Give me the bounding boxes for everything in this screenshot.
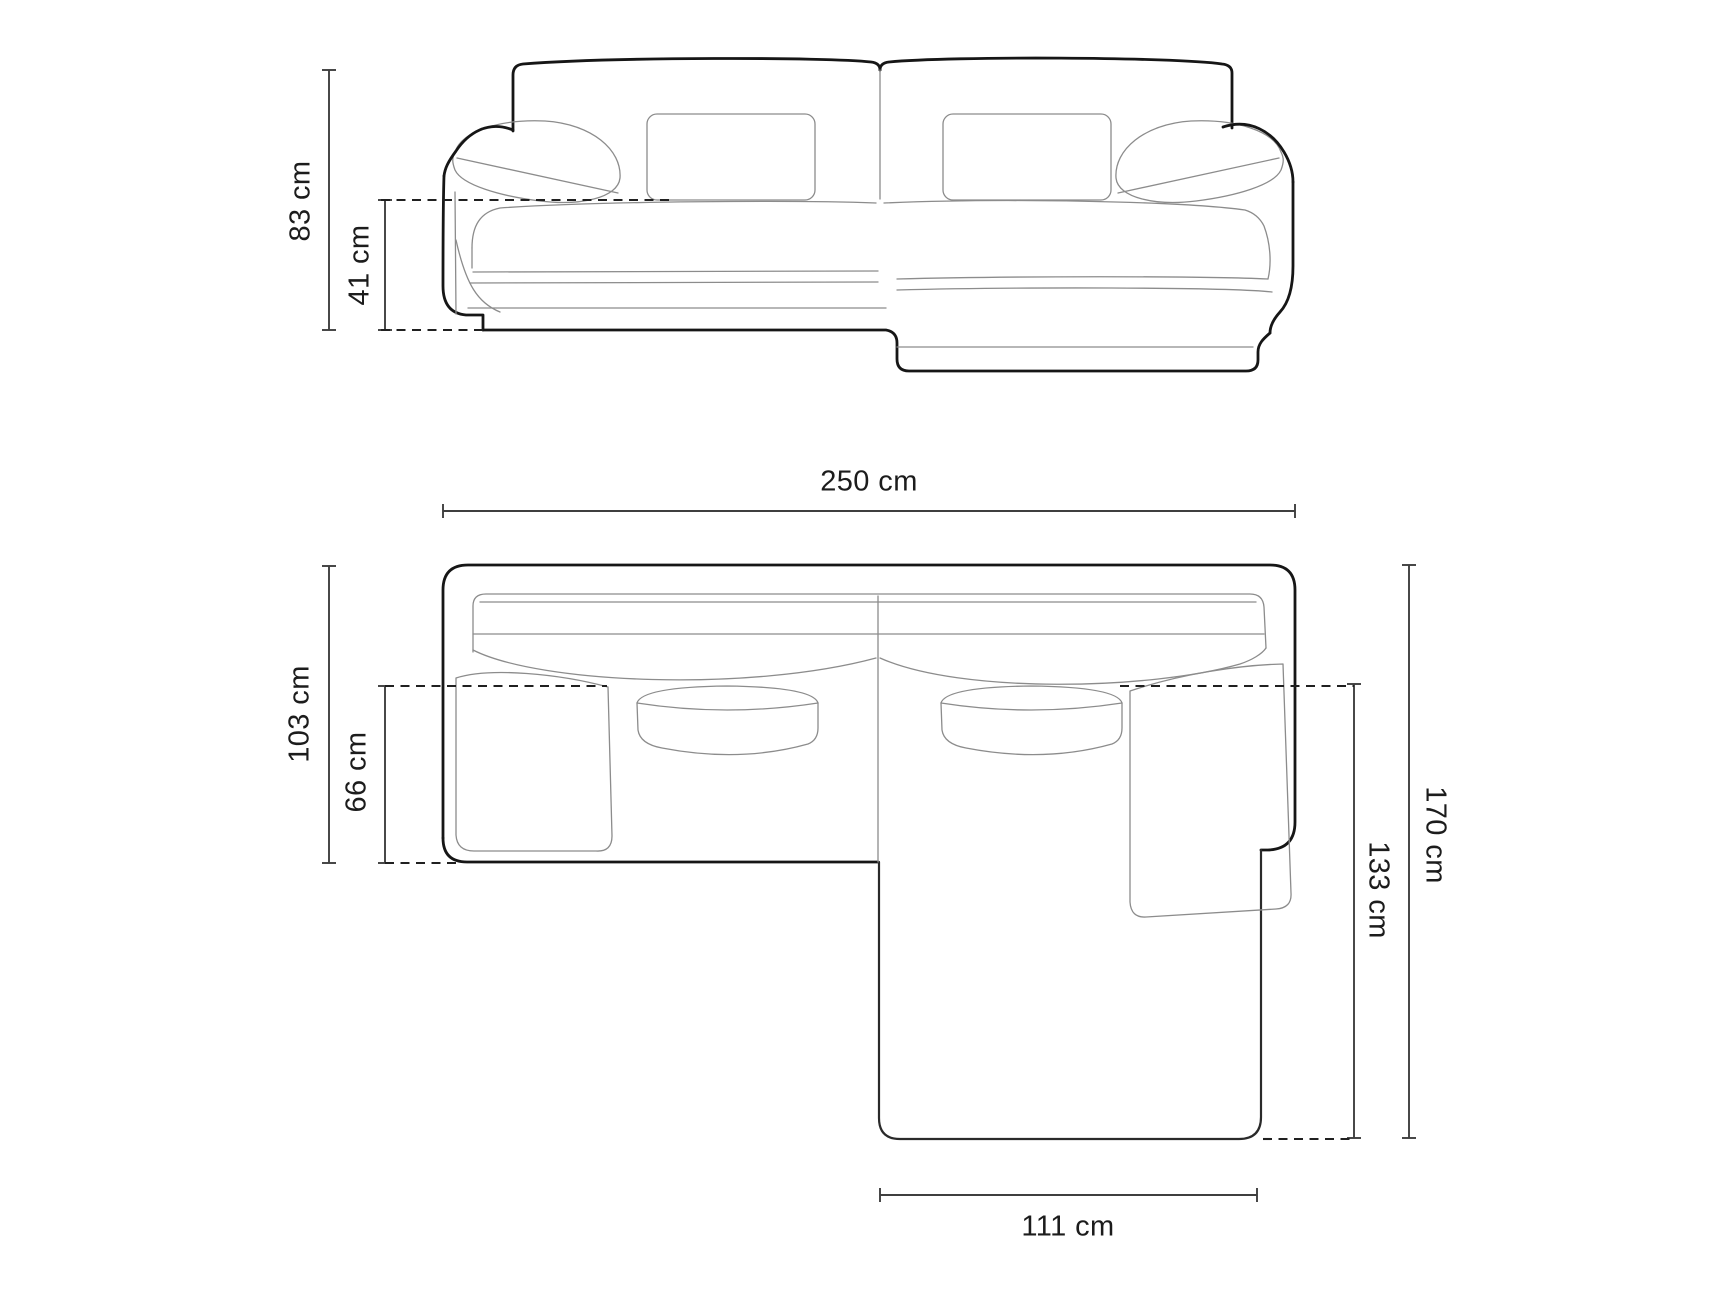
dimension-label-total-width: 250 cm [820,466,918,499]
front-arms-and-base [443,176,1293,371]
front-view [322,58,1293,371]
sofa-dimension-diagram: 83 cm 41 cm 250 cm 103 cm 66 cm 170 cm 1… [0,0,1734,1300]
plan-backrest [473,594,1266,684]
dimension-label-seat-depth: 66 cm [341,732,374,813]
plan-seat-cushions [637,686,1122,755]
front-seat-details [455,192,1272,347]
dimension-label-seat-height: 41 cm [344,225,377,306]
front-lumbar-pillows [647,114,1111,200]
dimension-label-chaise-depth: 133 cm [1362,841,1395,939]
top-view [322,504,1416,1202]
plan-dimension-lines [322,504,1416,1202]
plan-arm-pillows [456,664,1291,917]
dimension-label-total-height: 83 cm [285,161,318,242]
front-backrest [513,58,1232,199]
sofa-line-art [0,0,1734,1300]
dimension-label-total-depth: 170 cm [1419,786,1452,884]
front-arm-cushions [444,121,1293,203]
dimension-label-chaise-width: 111 cm [1021,1211,1114,1244]
plan-outline [443,565,1295,1139]
dimension-label-left-section-depth: 103 cm [284,665,317,763]
